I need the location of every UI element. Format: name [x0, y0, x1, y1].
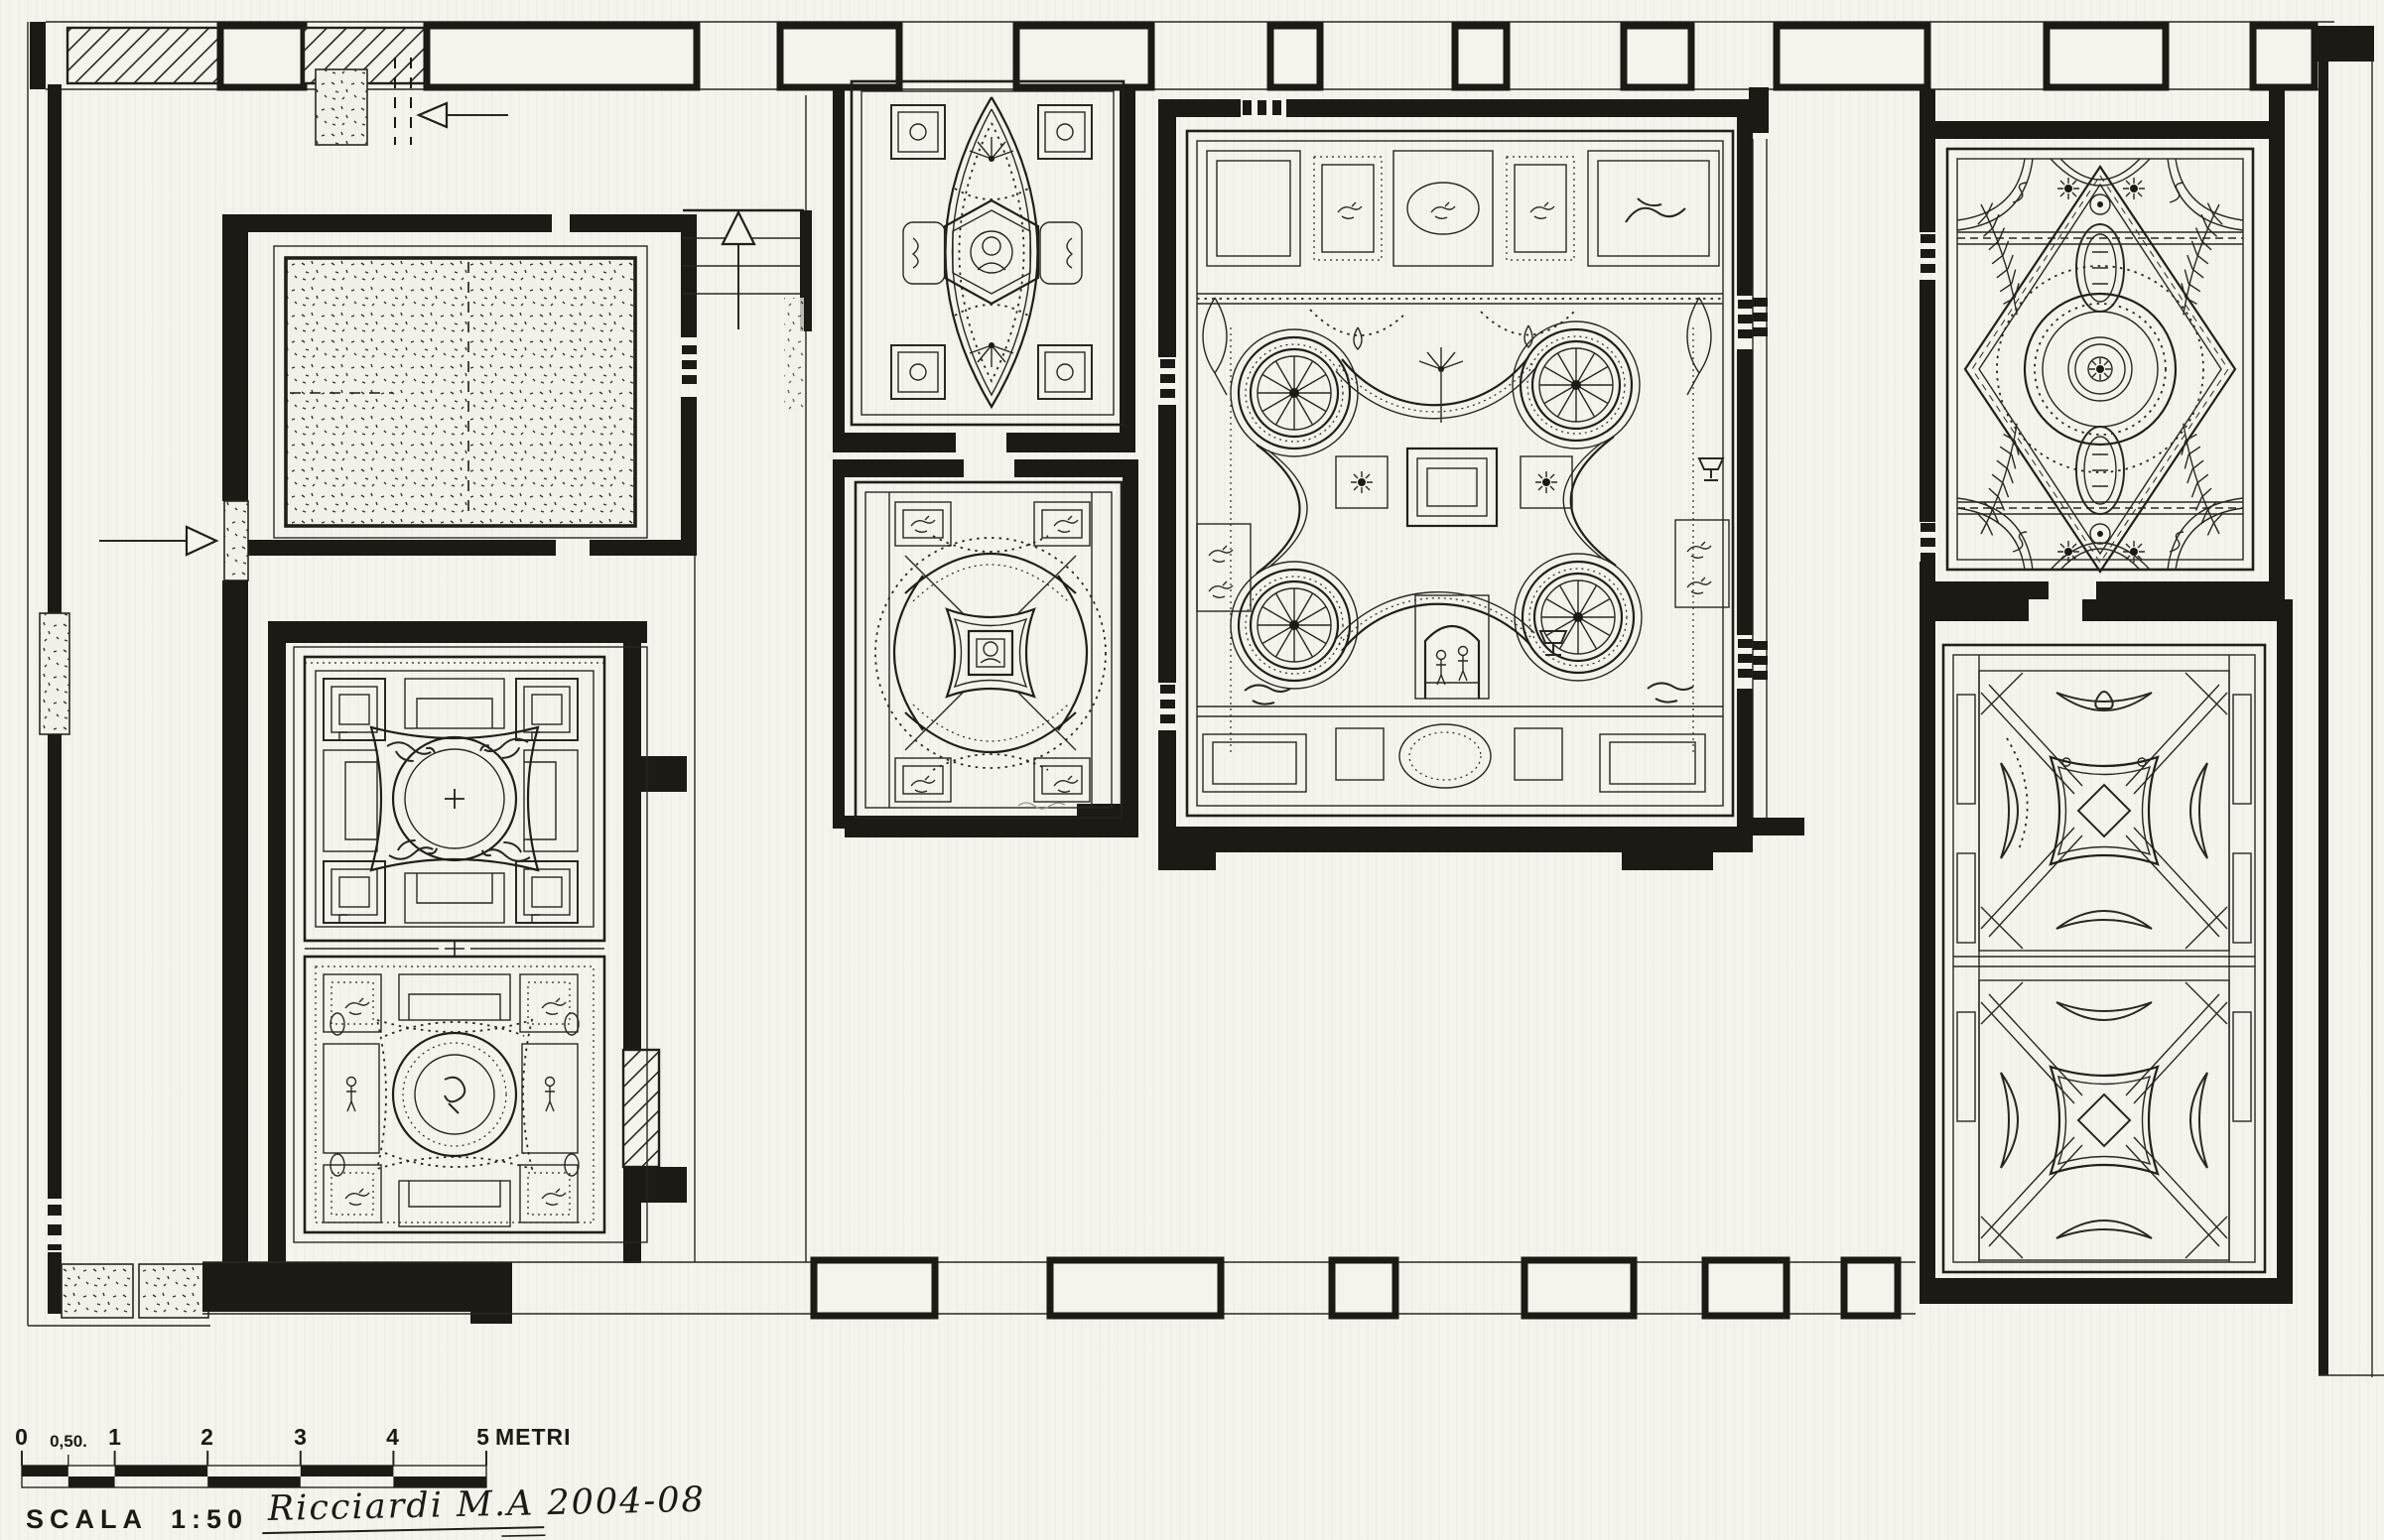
rubble-stipple — [784, 298, 804, 413]
scale-ratio: 1:50 — [171, 1504, 248, 1534]
scale-tick-1: 1 — [108, 1424, 122, 1450]
room-lower-left-ceilings — [202, 621, 687, 1324]
west-corridor-wall — [222, 214, 248, 1263]
scale-word: SCALA — [26, 1504, 148, 1534]
threshold-block — [40, 613, 69, 734]
panel-dotted-coffer — [305, 957, 604, 1232]
floor-plan-drawing: 0 0,50. 1 2 3 4 5 METRI SCALA 1:50 Ricci… — [0, 0, 2384, 1540]
urn-motif — [1699, 458, 1723, 480]
scale-tick-4: 4 — [386, 1424, 400, 1450]
door-arrow-left — [419, 103, 508, 127]
panel-meander-coffer — [305, 657, 604, 941]
tuff-block — [139, 1264, 208, 1318]
ceiling-main-field — [1197, 298, 1729, 754]
niche — [316, 69, 367, 145]
east-outer-wall — [2318, 52, 2384, 1377]
room-vesica-ceiling — [833, 81, 1135, 452]
corridor-wall-lines — [1749, 139, 1804, 835]
bell-motif — [2095, 692, 2112, 708]
ceiling-top-frieze — [1197, 151, 1723, 304]
room-pool — [248, 58, 697, 556]
door-jamb-block — [224, 501, 248, 580]
hatched-wall-block — [623, 1050, 659, 1167]
spade-leaf — [1203, 298, 1227, 395]
tuff-block — [62, 1264, 133, 1318]
scale-bar: 0 0,50. 1 2 3 4 5 METRI — [15, 1424, 571, 1487]
wall-pier — [220, 26, 304, 87]
pool-basin — [286, 258, 635, 526]
scale-tick-0: 0 — [15, 1424, 29, 1450]
entrance-arrow-west — [99, 527, 216, 555]
room-diamond-ceiling — [1920, 121, 2285, 599]
scale-tick-2: 2 — [200, 1424, 214, 1450]
scale-tick-5: 5 — [476, 1424, 490, 1450]
author-signature: Ricciardi M.A 2004-08 — [266, 1480, 706, 1529]
coffer-tile-lower — [1979, 980, 2229, 1260]
stairs-up-arrow — [723, 212, 754, 329]
bust-medallion — [983, 237, 1000, 255]
hatched-wall-block — [67, 28, 218, 83]
scale-tick-3: 3 — [294, 1424, 308, 1450]
west-outer-wall — [28, 22, 210, 1326]
drawing-sheet: 0 0,50. 1 2 3 4 5 METRI SCALA 1:50 Ricci… — [0, 0, 2384, 1540]
spade-leaf — [1687, 298, 1711, 395]
sea-griffin — [1648, 683, 1693, 702]
room-coffer-ceiling — [1920, 599, 2293, 1304]
title-block: SCALA 1:50 Ricciardi M.A 2004-08 — [26, 1480, 706, 1540]
room-central-great-ceiling — [1158, 99, 1753, 870]
scale-unit-label: METRI — [495, 1424, 572, 1450]
staircase — [683, 95, 812, 838]
room-quatrefoil-ceiling — [833, 459, 1138, 837]
coffer-tile-upper — [1979, 671, 2229, 951]
ceiling-bottom-frieze — [1197, 706, 1723, 792]
scale-tick-050: 0,50. — [50, 1432, 87, 1451]
bust-medallion — [984, 642, 997, 656]
